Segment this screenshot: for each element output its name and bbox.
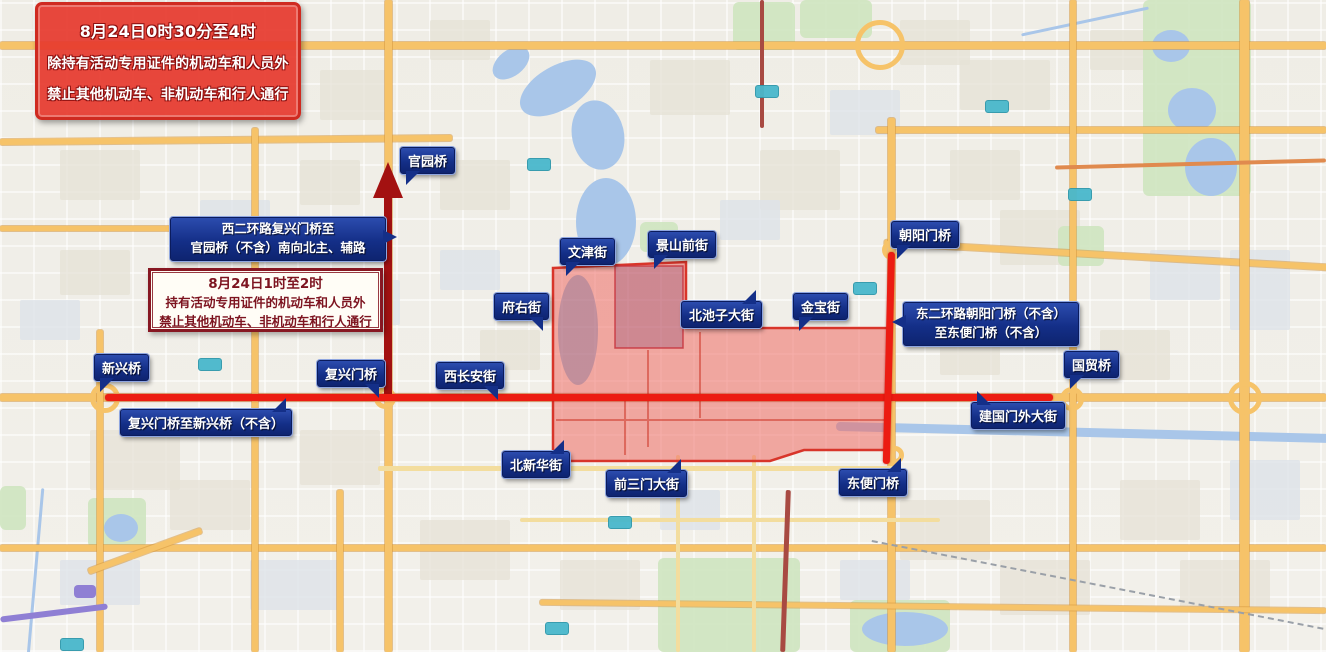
forbidden-city-block — [615, 266, 683, 348]
road-label-chaoyangmen-bridge: 朝阳门桥 — [891, 221, 959, 248]
road-label-guanyuan-bridge: 官园桥 — [400, 147, 455, 174]
road-label-guomao-bridge: 国贸桥 — [1064, 351, 1119, 378]
northbound-arrow — [373, 162, 403, 198]
zhongnanhai-lake — [558, 275, 598, 385]
restriction-notice-banner: 8月24日0时30分至4时 除持有活动专用证件的机动车和人员外 禁止其他机动车、… — [35, 2, 301, 120]
road-label-jianguomenwai-street: 建国门外大街 — [971, 402, 1065, 429]
road-label-jingshanqian-street: 景山前街 — [648, 231, 716, 258]
road-label-dongbianmen-bridge: 东便门桥 — [839, 469, 907, 496]
road-label-fuyou-street: 府右街 — [494, 293, 549, 320]
restriction-notice-box: 8月24日1时至2时 持有活动专用证件的机动车和人员外 禁止其他机动车、非机动车… — [148, 268, 383, 332]
banner-line-1: 8月24日0时30分至4时 — [42, 18, 294, 42]
road-label-qiansanmen-street: 前三门大街 — [606, 470, 687, 497]
banner-line-2: 除持有活动专用证件的机动车和人员外 — [42, 53, 294, 73]
road-label-xinxing-bridge: 新兴桥 — [94, 354, 149, 381]
notice-line-2: 持有活动专用证件的机动车和人员外 — [153, 292, 378, 311]
banner-line-3: 禁止其他机动车、非机动车和行人通行 — [42, 84, 294, 104]
notice-line-1: 8月24日1时至2时 — [153, 272, 378, 292]
closed-road-changan — [105, 394, 1053, 401]
road-label-fuxingmen-to-xinxing: 复兴门桥至新兴桥（不含） — [120, 409, 292, 436]
road-label-wenjin-street: 文津街 — [560, 238, 615, 265]
road-label-xichangan-street: 西长安街 — [436, 362, 504, 389]
road-label-beichizi-street: 北池子大街 — [681, 301, 762, 328]
road-label-beixinhua-street: 北新华街 — [502, 451, 570, 478]
road-label-fuxingmen-bridge: 复兴门桥 — [317, 360, 385, 387]
notice-line-3: 禁止其他机动车、非机动车和行人通行 — [153, 311, 378, 330]
map-canvas[interactable]: 官园桥 西二环路复兴门桥至 官园桥（不含）南向北主、辅路 文津街 景山前街 朝阳… — [0, 0, 1326, 652]
road-label-dongerhuan-route: 东二环路朝阳门桥（不含） 至东便门桥（不含） — [903, 302, 1079, 346]
road-label-jinbao-street: 金宝街 — [793, 293, 848, 320]
road-label-xierhuan-route: 西二环路复兴门桥至 官园桥（不含）南向北主、辅路 — [170, 217, 386, 261]
